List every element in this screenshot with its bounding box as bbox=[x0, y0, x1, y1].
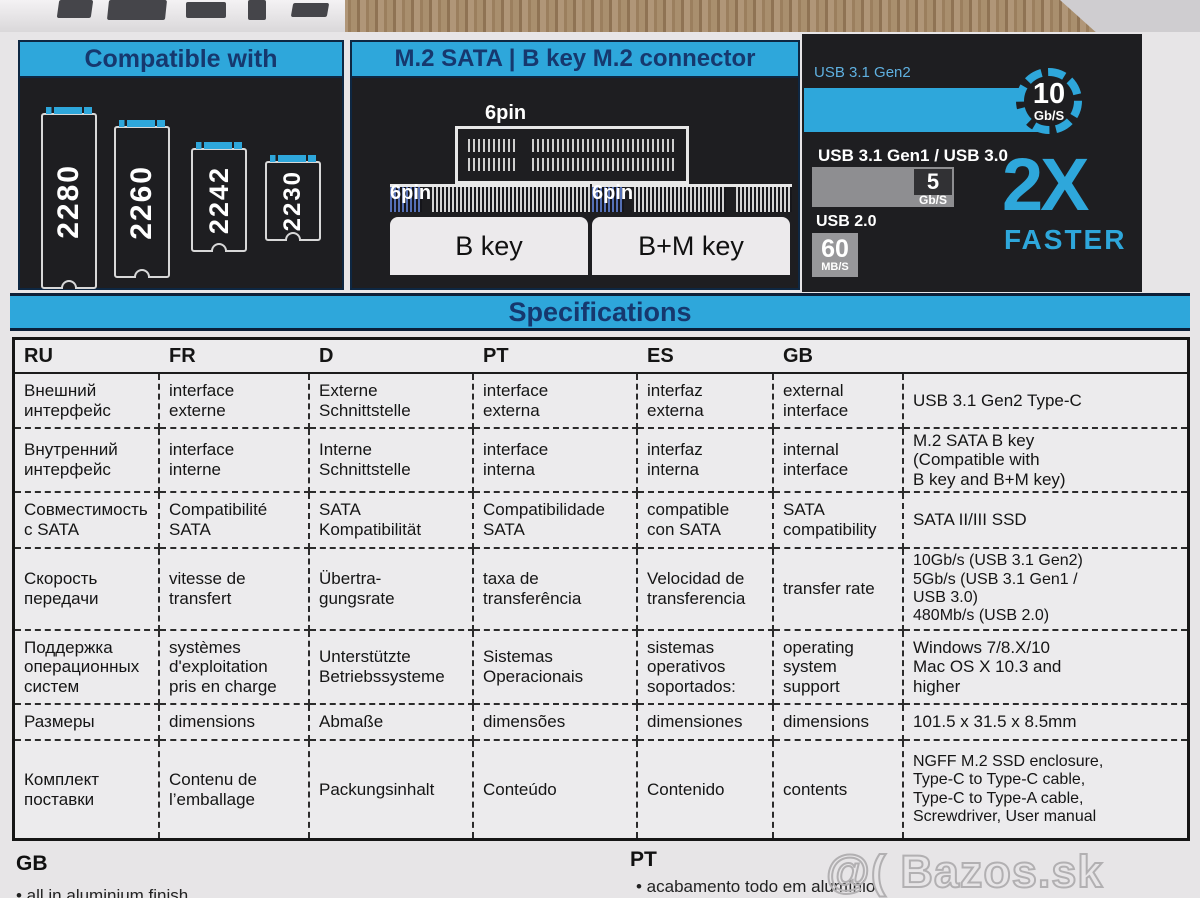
bm-key-pin-label: 6pin bbox=[592, 182, 633, 205]
spec-col-header: RU bbox=[15, 340, 160, 374]
spec-cell: interfaz externa bbox=[638, 374, 774, 429]
m2-contacts-icon bbox=[119, 120, 165, 127]
speed-panel: USB 3.1 Gen2 10 Gb/S USB 3.1 Gen1 / USB … bbox=[802, 34, 1142, 292]
2x-multiplier: 2X bbox=[1002, 148, 1087, 222]
spec-cell: Windows 7/8.X/10 Mac OS X 10.3 and highe… bbox=[904, 631, 1187, 705]
b-key-card: B key bbox=[390, 217, 588, 275]
faster-label: FASTER bbox=[1004, 224, 1126, 256]
spec-cell: Внешний интерфейс bbox=[15, 374, 160, 429]
m2-card-2260: 2260 bbox=[114, 126, 170, 278]
box-print-mark bbox=[57, 0, 94, 18]
spec-cell: dimensiones bbox=[638, 705, 774, 741]
m2-card-2280: 2280 bbox=[41, 113, 97, 289]
spec-col-header: GB bbox=[774, 340, 904, 374]
spec-cell: internal interface bbox=[774, 429, 904, 493]
spec-cell: M.2 SATA B key (Compatible with B key an… bbox=[904, 429, 1187, 493]
spec-col-header: ES bbox=[638, 340, 774, 374]
spec-cell: Velocidad de transferencia bbox=[638, 549, 774, 631]
spec-cell: interfaz interna bbox=[638, 429, 774, 493]
footer-gb-bullet: • all in aluminium finish bbox=[16, 886, 188, 898]
spec-cell: 101.5 x 31.5 x 8.5mm bbox=[904, 705, 1187, 741]
spec-cell: dimensões bbox=[474, 705, 638, 741]
spec-cell: interface externa bbox=[474, 374, 638, 429]
spec-col-header bbox=[904, 340, 1187, 374]
socket-pins-long bbox=[532, 139, 676, 171]
m2-notch-icon bbox=[211, 243, 227, 252]
spec-cell: dimensions bbox=[774, 705, 904, 741]
compatible-with-title: Compatible with bbox=[20, 42, 342, 78]
usb31-gen2-label: USB 3.1 Gen2 bbox=[814, 64, 911, 81]
usb31-gen1-label: USB 3.1 Gen1 / USB 3.0 bbox=[818, 146, 1008, 166]
box-print-mark bbox=[107, 0, 167, 20]
spec-cell: SATA compatibility bbox=[774, 493, 904, 549]
specifications-banner: Specifications bbox=[10, 293, 1190, 331]
m2-size-label: 2230 bbox=[279, 170, 307, 231]
spec-cell: Conteúdo bbox=[474, 741, 638, 838]
spec-cell: Externe Schnittstelle bbox=[310, 374, 474, 429]
spec-cell: operating system support bbox=[774, 631, 904, 705]
usb31-gen1-bar: 5 Gb/S bbox=[812, 167, 954, 207]
10gbs-badge-icon: 10 Gb/S bbox=[1016, 68, 1082, 134]
spec-cell: Скорость передачи bbox=[15, 549, 160, 631]
spec-cell: Compatibilidade SATA bbox=[474, 493, 638, 549]
spec-cell: interface interna bbox=[474, 429, 638, 493]
spec-cell: compatible con SATA bbox=[638, 493, 774, 549]
spec-cell: interface interne bbox=[160, 429, 310, 493]
m2-socket-diagram bbox=[455, 126, 689, 184]
m2-contacts-icon bbox=[270, 155, 316, 162]
spec-cell: taxa de transferência bbox=[474, 549, 638, 631]
spec-cell: Übertra- gungsrate bbox=[310, 549, 474, 631]
usb20-speed-unit: MB/S bbox=[821, 262, 849, 273]
spec-cell: dimensions bbox=[160, 705, 310, 741]
box-print-mark bbox=[186, 2, 226, 18]
connector-panel: M.2 SATA | B key M.2 connector 6pin 6pin… bbox=[350, 40, 800, 290]
spec-cell: SATA II/III SSD bbox=[904, 493, 1187, 549]
packaging-photo: Compatible with 2280 2260 2242 2230 M.2 … bbox=[0, 0, 1200, 898]
bm-key-label: B+M key bbox=[638, 231, 744, 262]
b-key-label: B key bbox=[455, 231, 523, 262]
spec-cell: Abmaße bbox=[310, 705, 474, 741]
spec-cell: Compatibilité SATA bbox=[160, 493, 310, 549]
m2-contacts-icon bbox=[46, 107, 92, 114]
gen2-speed-unit: Gb/S bbox=[1034, 109, 1064, 122]
socket-pin-label: 6pin bbox=[485, 102, 526, 125]
spec-cell: systèmes d'exploitation pris en charge bbox=[160, 631, 310, 705]
usb20-speed-value: 60 bbox=[821, 237, 849, 262]
spec-cell: Поддержка операционных систем bbox=[15, 631, 160, 705]
spec-cell: Contenu de l’emballage bbox=[160, 741, 310, 838]
spec-cell: Packungsinhalt bbox=[310, 741, 474, 838]
footer-pt-heading: PT bbox=[630, 848, 657, 872]
spec-cell: USB 3.1 Gen2 Type-C bbox=[904, 374, 1187, 429]
bazos-watermark: @( Bazos.sk bbox=[826, 846, 1103, 898]
spec-col-header: PT bbox=[474, 340, 638, 374]
spec-cell: Unterstützte Betriebssysteme bbox=[310, 631, 474, 705]
spec-cell: contents bbox=[774, 741, 904, 838]
spec-cell: Interne Schnittstelle bbox=[310, 429, 474, 493]
spec-cell: 10Gb/s (USB 3.1 Gen2) 5Gb/s (USB 3.1 Gen… bbox=[904, 549, 1187, 631]
spec-cell: Размеры bbox=[15, 705, 160, 741]
bm-key-connector-diagram: 6pin B+M key bbox=[592, 182, 792, 275]
spec-cell: Комплект поставки bbox=[15, 741, 160, 838]
bm-key-card: B+M key bbox=[592, 217, 790, 275]
spec-cell: Contenido bbox=[638, 741, 774, 838]
spec-cell: external interface bbox=[774, 374, 904, 429]
usb20-label: USB 2.0 bbox=[816, 213, 876, 231]
box-fold-edge bbox=[0, 0, 345, 34]
m2-notch-icon bbox=[61, 280, 77, 289]
compatible-with-panel: Compatible with 2280 2260 2242 2230 bbox=[18, 40, 344, 290]
m2-size-label: 2260 bbox=[125, 165, 159, 240]
spec-cell: transfer rate bbox=[774, 549, 904, 631]
spec-cell: SATA Kompatibilität bbox=[310, 493, 474, 549]
m2-card-2230: 2230 bbox=[265, 161, 321, 241]
spec-col-header: D bbox=[310, 340, 474, 374]
b-key-connector-diagram: 6pin B key bbox=[390, 182, 590, 275]
gen2-speed-value: 10 bbox=[1033, 80, 1065, 109]
m2-notch-icon bbox=[285, 232, 301, 241]
gen1-speed-value: 5 bbox=[914, 169, 952, 195]
socket-pins-short bbox=[468, 139, 518, 171]
spec-cell: vitesse de transfert bbox=[160, 549, 310, 631]
spec-col-header: FR bbox=[160, 340, 310, 374]
gen1-speed-unit: Gb/S bbox=[914, 193, 952, 207]
m2-contacts-icon bbox=[196, 142, 242, 149]
spec-cell: Совместимость с SATA bbox=[15, 493, 160, 549]
spec-cell: sistemas operativos soportados: bbox=[638, 631, 774, 705]
box-print-mark bbox=[248, 0, 266, 20]
spec-cell: Внутренний интерфейс bbox=[15, 429, 160, 493]
m2-size-label: 2242 bbox=[204, 166, 235, 234]
spec-cell: interface externe bbox=[160, 374, 310, 429]
spec-cell: NGFF M.2 SSD enclosure, Type-C to Type-C… bbox=[904, 741, 1187, 838]
footer-gb-heading: GB bbox=[16, 852, 48, 876]
box-print-mark bbox=[291, 3, 329, 17]
specifications-table: RU FR D PT ES GB Внешний интерфейс inter… bbox=[12, 337, 1190, 841]
spec-cell: Sistemas Operacionais bbox=[474, 631, 638, 705]
usb20-speed-badge: 60 MB/S bbox=[812, 233, 858, 277]
m2-size-label: 2280 bbox=[52, 164, 86, 239]
connector-title: M.2 SATA | B key M.2 connector bbox=[352, 42, 798, 78]
m2-card-2242: 2242 bbox=[191, 148, 247, 252]
b-key-pin-label: 6pin bbox=[390, 182, 431, 205]
m2-notch-icon bbox=[134, 269, 150, 278]
